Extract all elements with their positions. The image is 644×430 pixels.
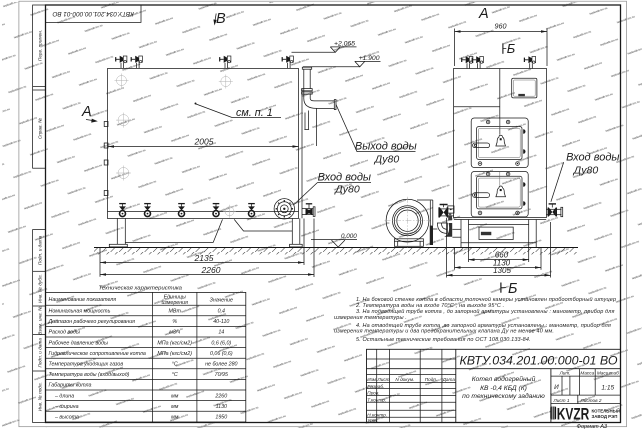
svg-text:Ду80: Ду80 — [334, 184, 360, 196]
svg-text:2260: 2260 — [201, 265, 221, 275]
svg-text:МВт: МВт — [169, 309, 182, 315]
svg-text:Инв. № дубл.: Инв. № дубл. — [38, 274, 43, 303]
svg-text:Подп.: Подп. — [425, 377, 437, 382]
svg-text:Масштаб: Масштаб — [597, 370, 619, 375]
svg-text:Утв.: Утв. — [367, 418, 378, 423]
svg-text:Номинальная мощность: Номинальная мощность — [49, 309, 111, 315]
svg-text:Вход воды: Вход воды — [566, 152, 619, 164]
svg-text:Справ. №: Справ. № — [38, 118, 43, 139]
svg-text:1:15: 1:15 — [601, 384, 614, 391]
svg-text:измерения температуры и два: измерения температуры и два предохраните… — [334, 329, 554, 335]
svg-text:2260: 2260 — [214, 393, 227, 399]
svg-text:2005: 2005 — [194, 137, 214, 147]
svg-text:Подп. и дата: Подп. и дата — [38, 235, 43, 265]
svg-text:мм: мм — [171, 415, 179, 421]
svg-text:И: И — [554, 384, 559, 391]
svg-text:2135: 2135 — [194, 253, 214, 263]
svg-text:KVZR: KVZR — [557, 406, 590, 424]
svg-text:+1.900: +1.900 — [359, 55, 380, 62]
svg-text:А: А — [478, 6, 489, 22]
svg-text:Взам. инв. №: Взам. инв. № — [38, 306, 43, 335]
svg-text:КВТУ.034.201.00.000-01 ВО: КВТУ.034.201.00.000-01 ВО — [52, 10, 133, 17]
svg-text:не более 280: не более 280 — [205, 362, 237, 368]
svg-text:Листов 2: Листов 2 — [580, 398, 602, 403]
svg-text:Техническая характеристика: Техническая характеристика — [99, 286, 183, 292]
svg-text:по техническому заданию: по техническому заданию — [462, 392, 545, 400]
svg-text:Значение: Значение — [210, 297, 233, 303]
svg-text:Габариты котла: Габариты котла — [49, 383, 92, 389]
svg-text:+2.065: +2.065 — [334, 40, 355, 47]
svg-text:Выход воды: Выход воды — [355, 140, 417, 152]
svg-text:Инв. № подл.: Инв. № подл. — [38, 382, 43, 411]
svg-text:Лист 1: Лист 1 — [553, 398, 570, 403]
svg-text:см. п. 1: см. п. 1 — [236, 107, 273, 119]
svg-text:– ширина: – ширина — [54, 404, 79, 410]
svg-text:0.000: 0.000 — [341, 233, 357, 240]
svg-text:1305: 1305 — [493, 266, 511, 275]
svg-text:МПа (кгс/см2): МПа (кгс/см2) — [157, 351, 192, 357]
svg-text:Температура уходящих газов: Температура уходящих газов — [49, 362, 124, 368]
svg-text:°С: °С — [172, 372, 178, 378]
svg-text:Котел водогрейный: Котел водогрейный — [472, 375, 536, 383]
svg-text:Масса: Масса — [580, 370, 594, 375]
svg-text:N докум.: N докум. — [395, 377, 414, 382]
svg-text:Подп. и дата: Подп. и дата — [38, 338, 43, 368]
svg-text:Дата: Дата — [442, 377, 456, 382]
svg-text:0,06 (0,6): 0,06 (0,6) — [210, 351, 233, 357]
svg-text:1130: 1130 — [216, 404, 227, 410]
svg-text:960: 960 — [495, 22, 507, 31]
svg-text:КВТУ.034.201.00.000-01 ВО: КВТУ.034.201.00.000-01 ВО — [460, 353, 618, 367]
svg-text:– высота: – высота — [54, 415, 79, 421]
svg-text:Т.контр.: Т.контр. — [367, 398, 386, 403]
svg-text:%: % — [172, 319, 177, 325]
svg-text:Наименование показателя: Наименование показателя — [49, 297, 117, 303]
svg-text:измерения температуры .: измерения температуры . — [334, 315, 407, 321]
svg-text:Разраб.: Разраб. — [367, 384, 384, 389]
svg-text:Лист: Лист — [377, 377, 390, 382]
svg-text:Б: Б — [508, 281, 517, 297]
svg-text:Н.контр.: Н.контр. — [367, 412, 387, 417]
svg-text:Ду80: Ду80 — [573, 164, 599, 176]
svg-text:70/95: 70/95 — [215, 372, 228, 378]
svg-text:м3/ч: м3/ч — [169, 330, 180, 336]
svg-text:Вход воды: Вход воды — [318, 171, 371, 183]
svg-text:ЗАВОД РЭП: ЗАВОД РЭП — [592, 414, 618, 419]
svg-text:0,6 (6,0): 0,6 (6,0) — [211, 340, 231, 346]
svg-text:14: 14 — [218, 330, 224, 336]
svg-text:0,4: 0,4 — [218, 309, 225, 315]
svg-text:Лит.: Лит. — [559, 370, 571, 375]
svg-text:Б: Б — [507, 41, 516, 56]
svg-text:5. Остальные технические тр: 5. Остальные технические требования по О… — [356, 337, 531, 343]
svg-text:А: А — [81, 104, 92, 120]
svg-text:МПа (кгс/см2): МПа (кгс/см2) — [157, 340, 192, 346]
svg-text:Изм.: Изм. — [367, 377, 377, 382]
svg-text:Температура воды (вход/выход: Температура воды (вход/выход) — [49, 372, 130, 378]
svg-text:В: В — [216, 11, 226, 27]
svg-text:– длина: – длина — [54, 393, 74, 399]
svg-text:Формат А3: Формат А3 — [577, 424, 608, 430]
svg-text:Перв. примен.: Перв. примен. — [38, 30, 43, 61]
svg-text:Расход воды: Расход воды — [49, 330, 80, 336]
svg-text:Рабочее давление воды: Рабочее давление воды — [49, 340, 108, 346]
svg-text:Ду80: Ду80 — [374, 154, 400, 166]
svg-text:измерения: измерения — [161, 300, 188, 306]
svg-text:40-110: 40-110 — [213, 319, 229, 325]
svg-text:Гидравлическое сопротивление: Гидравлическое сопротивление котла — [49, 351, 146, 357]
svg-text:Пров.: Пров. — [367, 391, 379, 396]
svg-text:°С: °С — [172, 362, 178, 368]
svg-text:мм: мм — [171, 393, 179, 399]
svg-text:Диапазон рабочего регулирова: Диапазон рабочего регулирования — [48, 319, 136, 325]
svg-text:1950: 1950 — [215, 415, 227, 421]
svg-text:КВ -0,4 КБД (К): КВ -0,4 КБД (К) — [480, 385, 527, 392]
svg-text:КОТЕЛЬНЫЙ: КОТЕЛЬНЫЙ — [592, 408, 621, 413]
svg-text:мм: мм — [171, 404, 179, 410]
